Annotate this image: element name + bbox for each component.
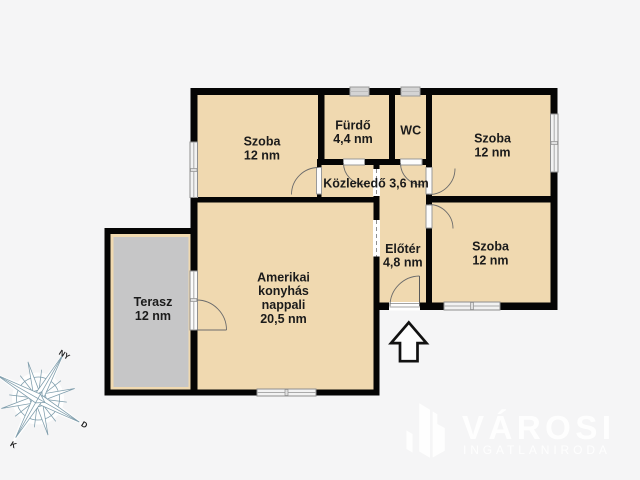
svg-text:4,4 nm: 4,4 nm	[333, 132, 373, 146]
svg-text:4,8 nm: 4,8 nm	[383, 256, 423, 270]
svg-text:nappali: nappali	[262, 298, 306, 312]
svg-text:VÁROSI: VÁROSI	[462, 409, 616, 446]
svg-text:Közlekedő 3,6 nm: Közlekedő 3,6 nm	[323, 177, 429, 191]
svg-text:Amerikai: Amerikai	[257, 270, 310, 284]
svg-text:12 nm: 12 nm	[135, 309, 171, 323]
svg-text:Szoba: Szoba	[472, 240, 510, 254]
svg-text:INGATLANIRODA: INGATLANIRODA	[463, 443, 611, 457]
svg-text:12 nm: 12 nm	[472, 254, 508, 268]
svg-text:12 nm: 12 nm	[474, 146, 510, 160]
svg-text:Szoba: Szoba	[474, 132, 512, 146]
svg-text:Előtér: Előtér	[385, 242, 421, 256]
svg-text:Fürdő: Fürdő	[335, 119, 371, 133]
svg-text:Szoba: Szoba	[244, 135, 282, 149]
svg-text:konyhás: konyhás	[258, 284, 309, 298]
svg-text:WC: WC	[400, 124, 421, 138]
svg-text:20,5 nm: 20,5 nm	[260, 312, 307, 326]
svg-text:12 nm: 12 nm	[244, 149, 280, 163]
svg-text:Terasz: Terasz	[134, 295, 173, 309]
